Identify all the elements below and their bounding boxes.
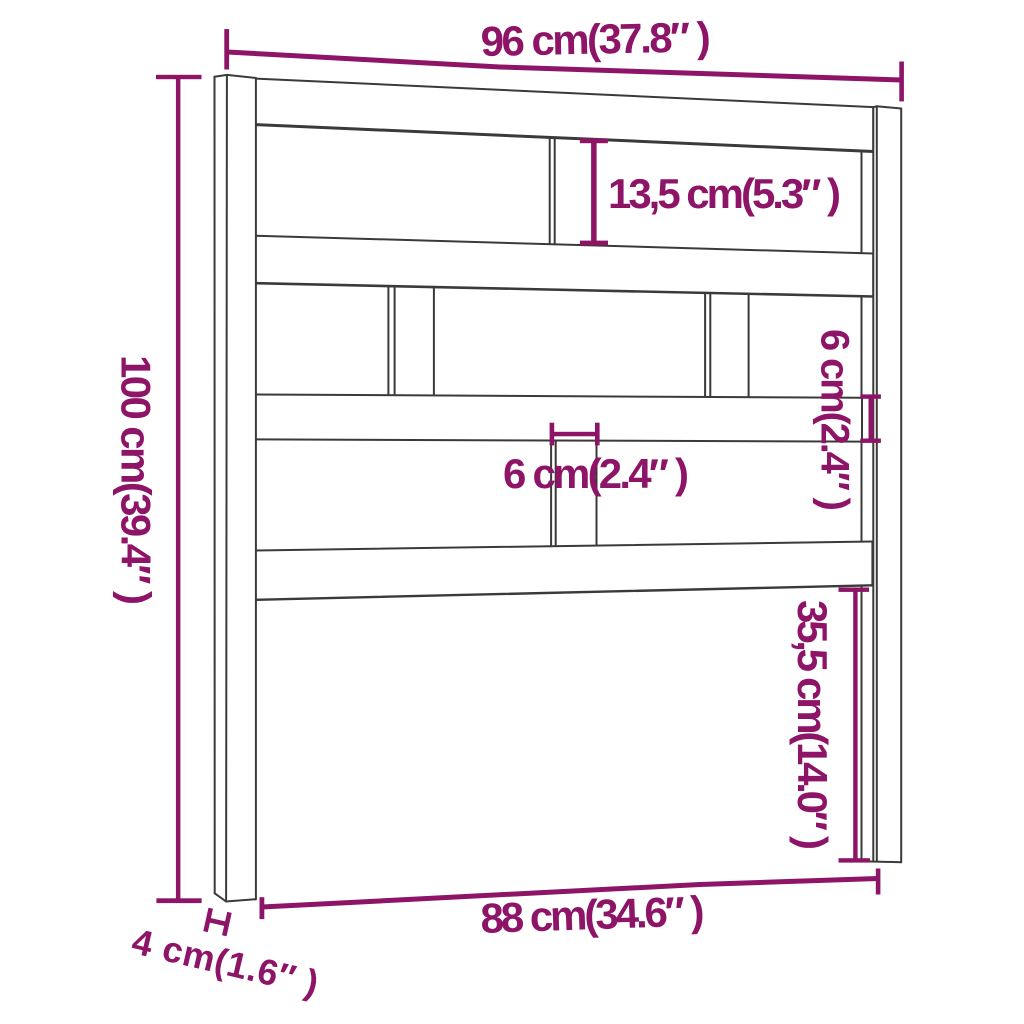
- svg-text:6 cm(2.4″ ): 6 cm(2.4″ ): [813, 329, 857, 511]
- svg-text:96 cm(37.8″ ): 96 cm(37.8″ ): [480, 13, 711, 65]
- svg-text:6 cm(2.4″ ): 6 cm(2.4″ ): [503, 450, 689, 497]
- svg-text:88 cm(34.6″ ): 88 cm(34.6″ ): [480, 887, 706, 942]
- svg-text:35,5 cm(14.0″ ): 35,5 cm(14.0″ ): [789, 600, 836, 850]
- svg-text:13,5 cm(5.3″ ): 13,5 cm(5.3″ ): [608, 170, 841, 217]
- svg-text:100 cm(39.4″ ): 100 cm(39.4″ ): [113, 355, 160, 605]
